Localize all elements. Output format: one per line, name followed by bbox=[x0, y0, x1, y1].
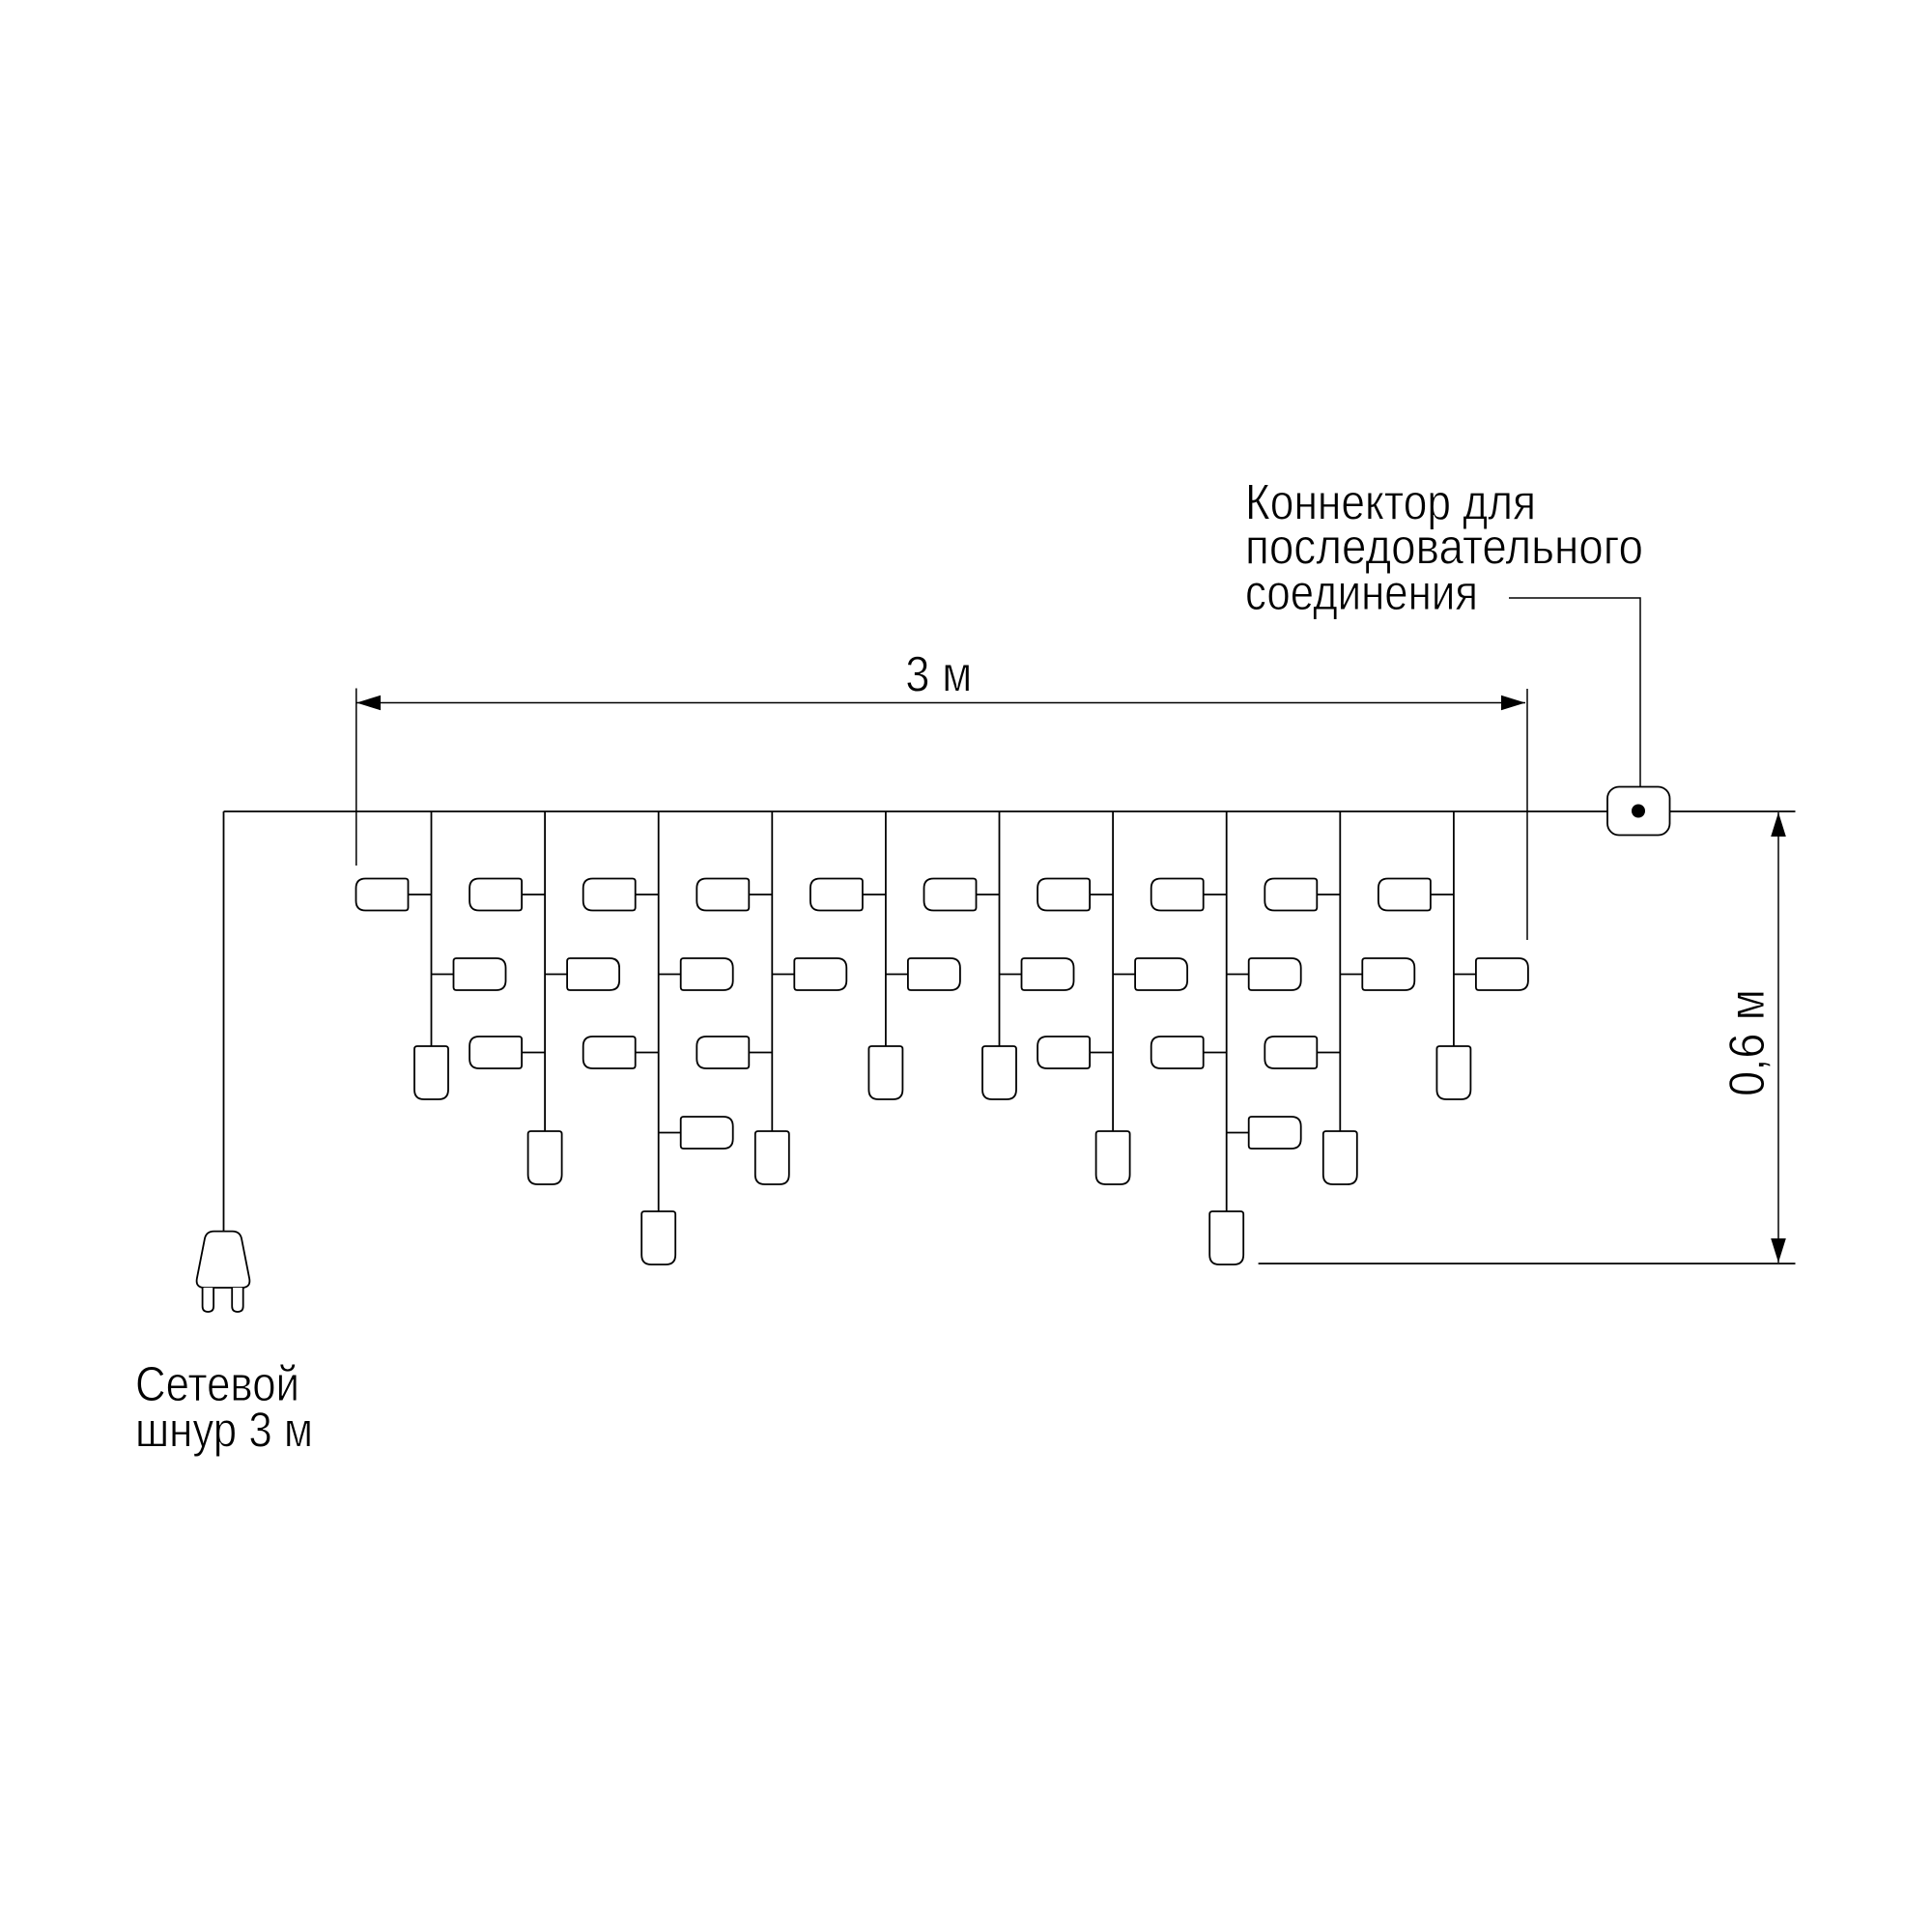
svg-text:0,6 м: 0,6 м bbox=[1719, 989, 1776, 1096]
svg-text:соединения: соединения bbox=[1245, 565, 1478, 621]
svg-text:3 м: 3 м bbox=[905, 646, 972, 702]
svg-text:шнур 3 м: шнур 3 м bbox=[135, 1403, 313, 1458]
